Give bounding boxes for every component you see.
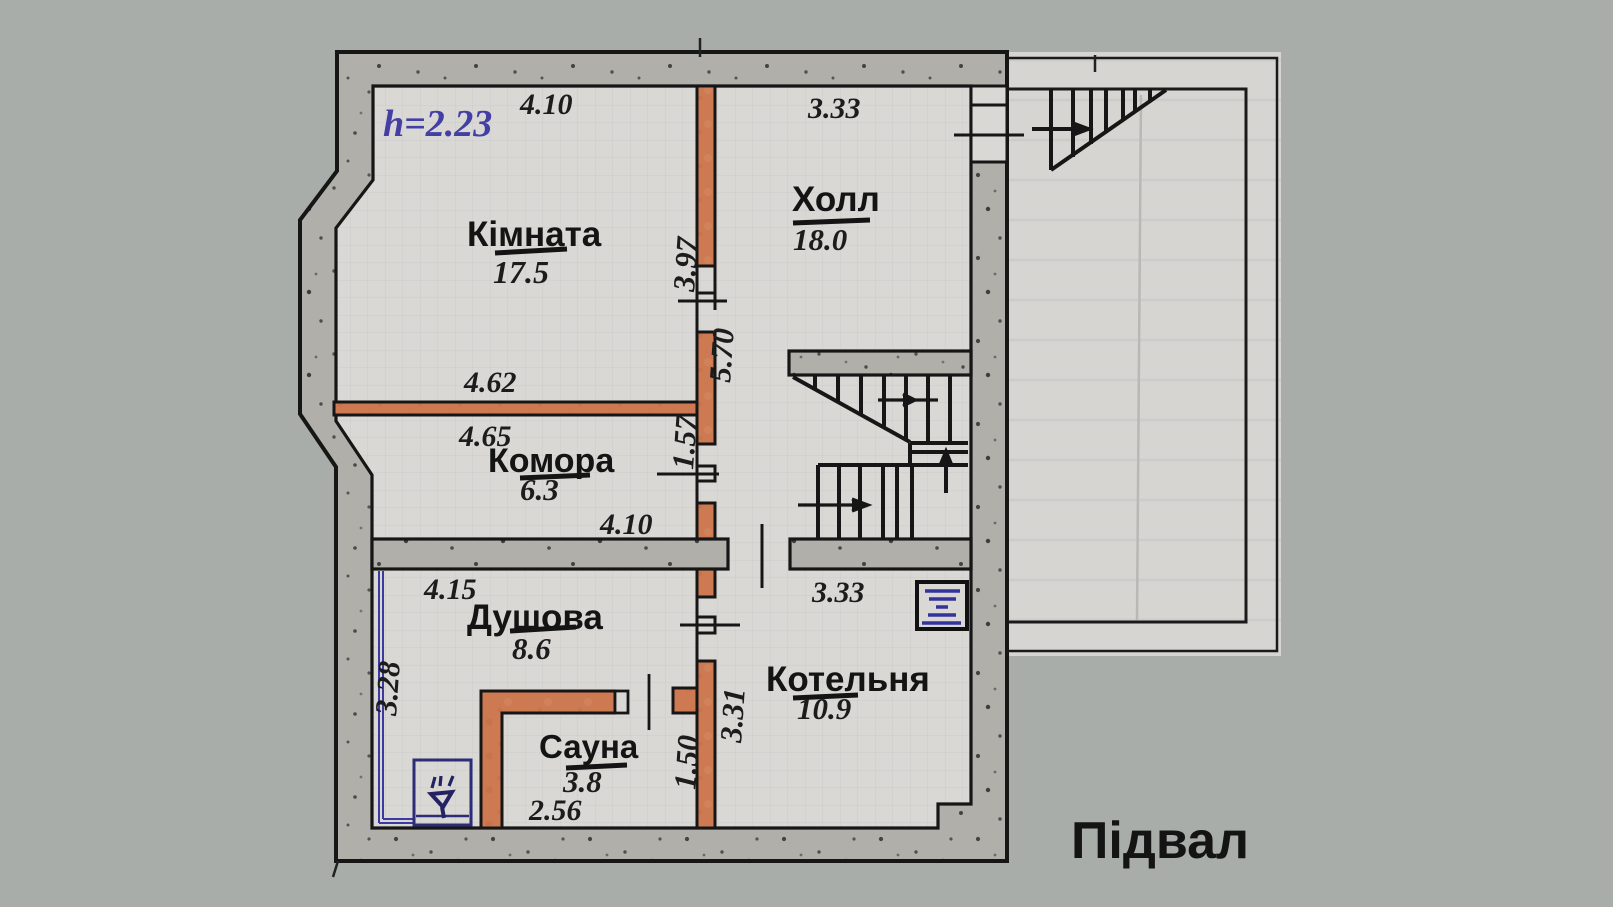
svg-text:18.0: 18.0 xyxy=(793,222,847,257)
svg-text:1.50: 1.50 xyxy=(667,734,706,791)
svg-text:Сауна: Сауна xyxy=(539,728,639,765)
svg-text:6.3: 6.3 xyxy=(520,472,559,507)
svg-text:3.31: 3.31 xyxy=(713,687,752,745)
svg-text:5.70: 5.70 xyxy=(702,327,741,384)
svg-text:3.33: 3.33 xyxy=(811,576,865,609)
svg-text:8.6: 8.6 xyxy=(512,631,551,666)
svg-text:4.62: 4.62 xyxy=(463,366,517,399)
svg-text:1.57: 1.57 xyxy=(665,412,704,470)
svg-text:10.9: 10.9 xyxy=(797,691,851,726)
svg-text:3.33: 3.33 xyxy=(807,92,861,125)
svg-text:2.56: 2.56 xyxy=(528,794,582,827)
svg-text:3.28: 3.28 xyxy=(368,659,407,717)
svg-text:Підвал: Підвал xyxy=(1071,812,1249,870)
svg-text:4.65: 4.65 xyxy=(458,420,512,453)
svg-text:17.5: 17.5 xyxy=(493,254,549,290)
svg-text:4.15: 4.15 xyxy=(423,573,477,606)
svg-text:Кімната: Кімната xyxy=(467,215,602,254)
svg-text:4.10: 4.10 xyxy=(519,88,573,121)
svg-text:3.97: 3.97 xyxy=(666,234,705,293)
svg-text:4.10: 4.10 xyxy=(599,508,653,541)
svg-text:h=2.23: h=2.23 xyxy=(383,103,492,145)
svg-text:Холл: Холл xyxy=(792,180,880,219)
